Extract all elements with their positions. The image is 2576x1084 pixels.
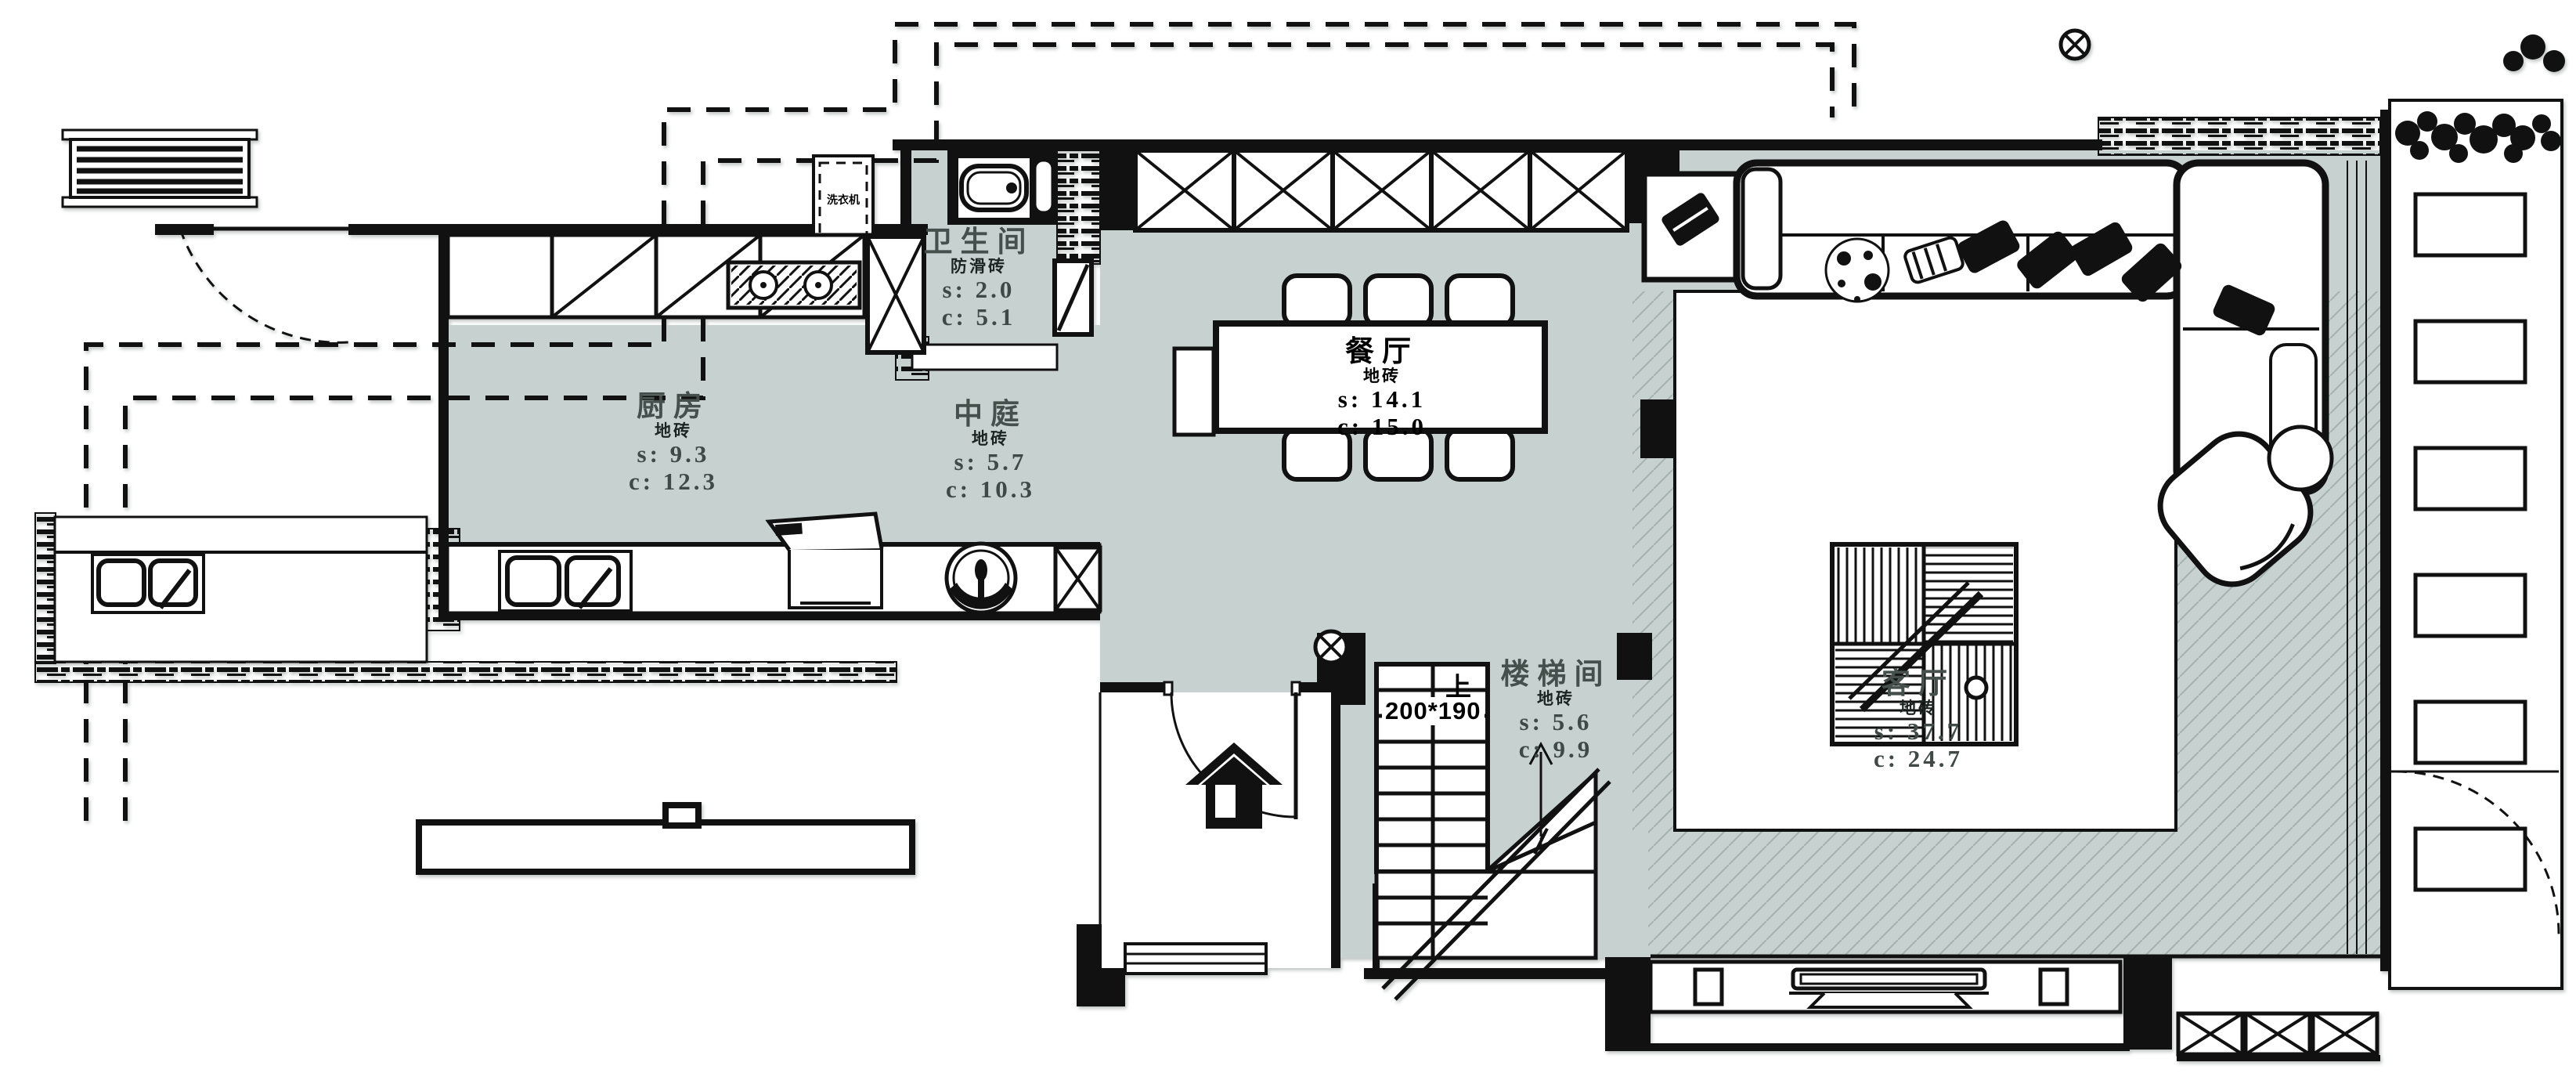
bottom-window-xboxes	[2178, 1014, 2377, 1054]
bathtub-icon	[957, 157, 1031, 219]
column-xbox-kitchen	[868, 237, 924, 352]
louver-unit-icon	[63, 130, 257, 207]
floor-plan-drawing	[0, 0, 2576, 1084]
cooktop-icon	[728, 262, 860, 308]
dining-table	[1216, 323, 1545, 431]
planter-strip	[2390, 34, 2565, 988]
round-basin-icon	[947, 544, 1016, 612]
floor-plan-canvas: 卫生间 防滑砖 s: 2.0 c: 5.1 厨房 地砖 s: 9.3 c: 12…	[0, 0, 2576, 1084]
dining-cabinet-row	[1135, 150, 1627, 230]
left-door	[180, 229, 348, 342]
coffee-table	[1832, 544, 2016, 744]
spotted-cushion	[1826, 239, 1889, 302]
sofa-side-table	[1644, 174, 1737, 280]
sink-kitchen-icon	[500, 551, 631, 611]
column-xbox-counter	[1055, 547, 1100, 610]
low-window	[1125, 944, 1266, 974]
bathroom-sliding-door	[1052, 258, 1094, 337]
shower-column-icon	[1035, 161, 1052, 212]
bathroom-threshold	[912, 345, 1057, 370]
tv-console	[1651, 962, 2120, 1012]
tv-icon	[1789, 970, 1989, 1007]
dining-side-console	[1174, 349, 1214, 435]
round-side-table	[2269, 427, 2332, 490]
washer-label: 洗衣机	[812, 192, 875, 208]
stair-tread-label: 200*190	[1382, 697, 1485, 725]
sink-outdoor-icon	[92, 555, 204, 612]
bench-planter	[419, 805, 912, 872]
light-symbol-entry	[1315, 631, 1347, 663]
light-symbol-top	[2061, 31, 2089, 59]
